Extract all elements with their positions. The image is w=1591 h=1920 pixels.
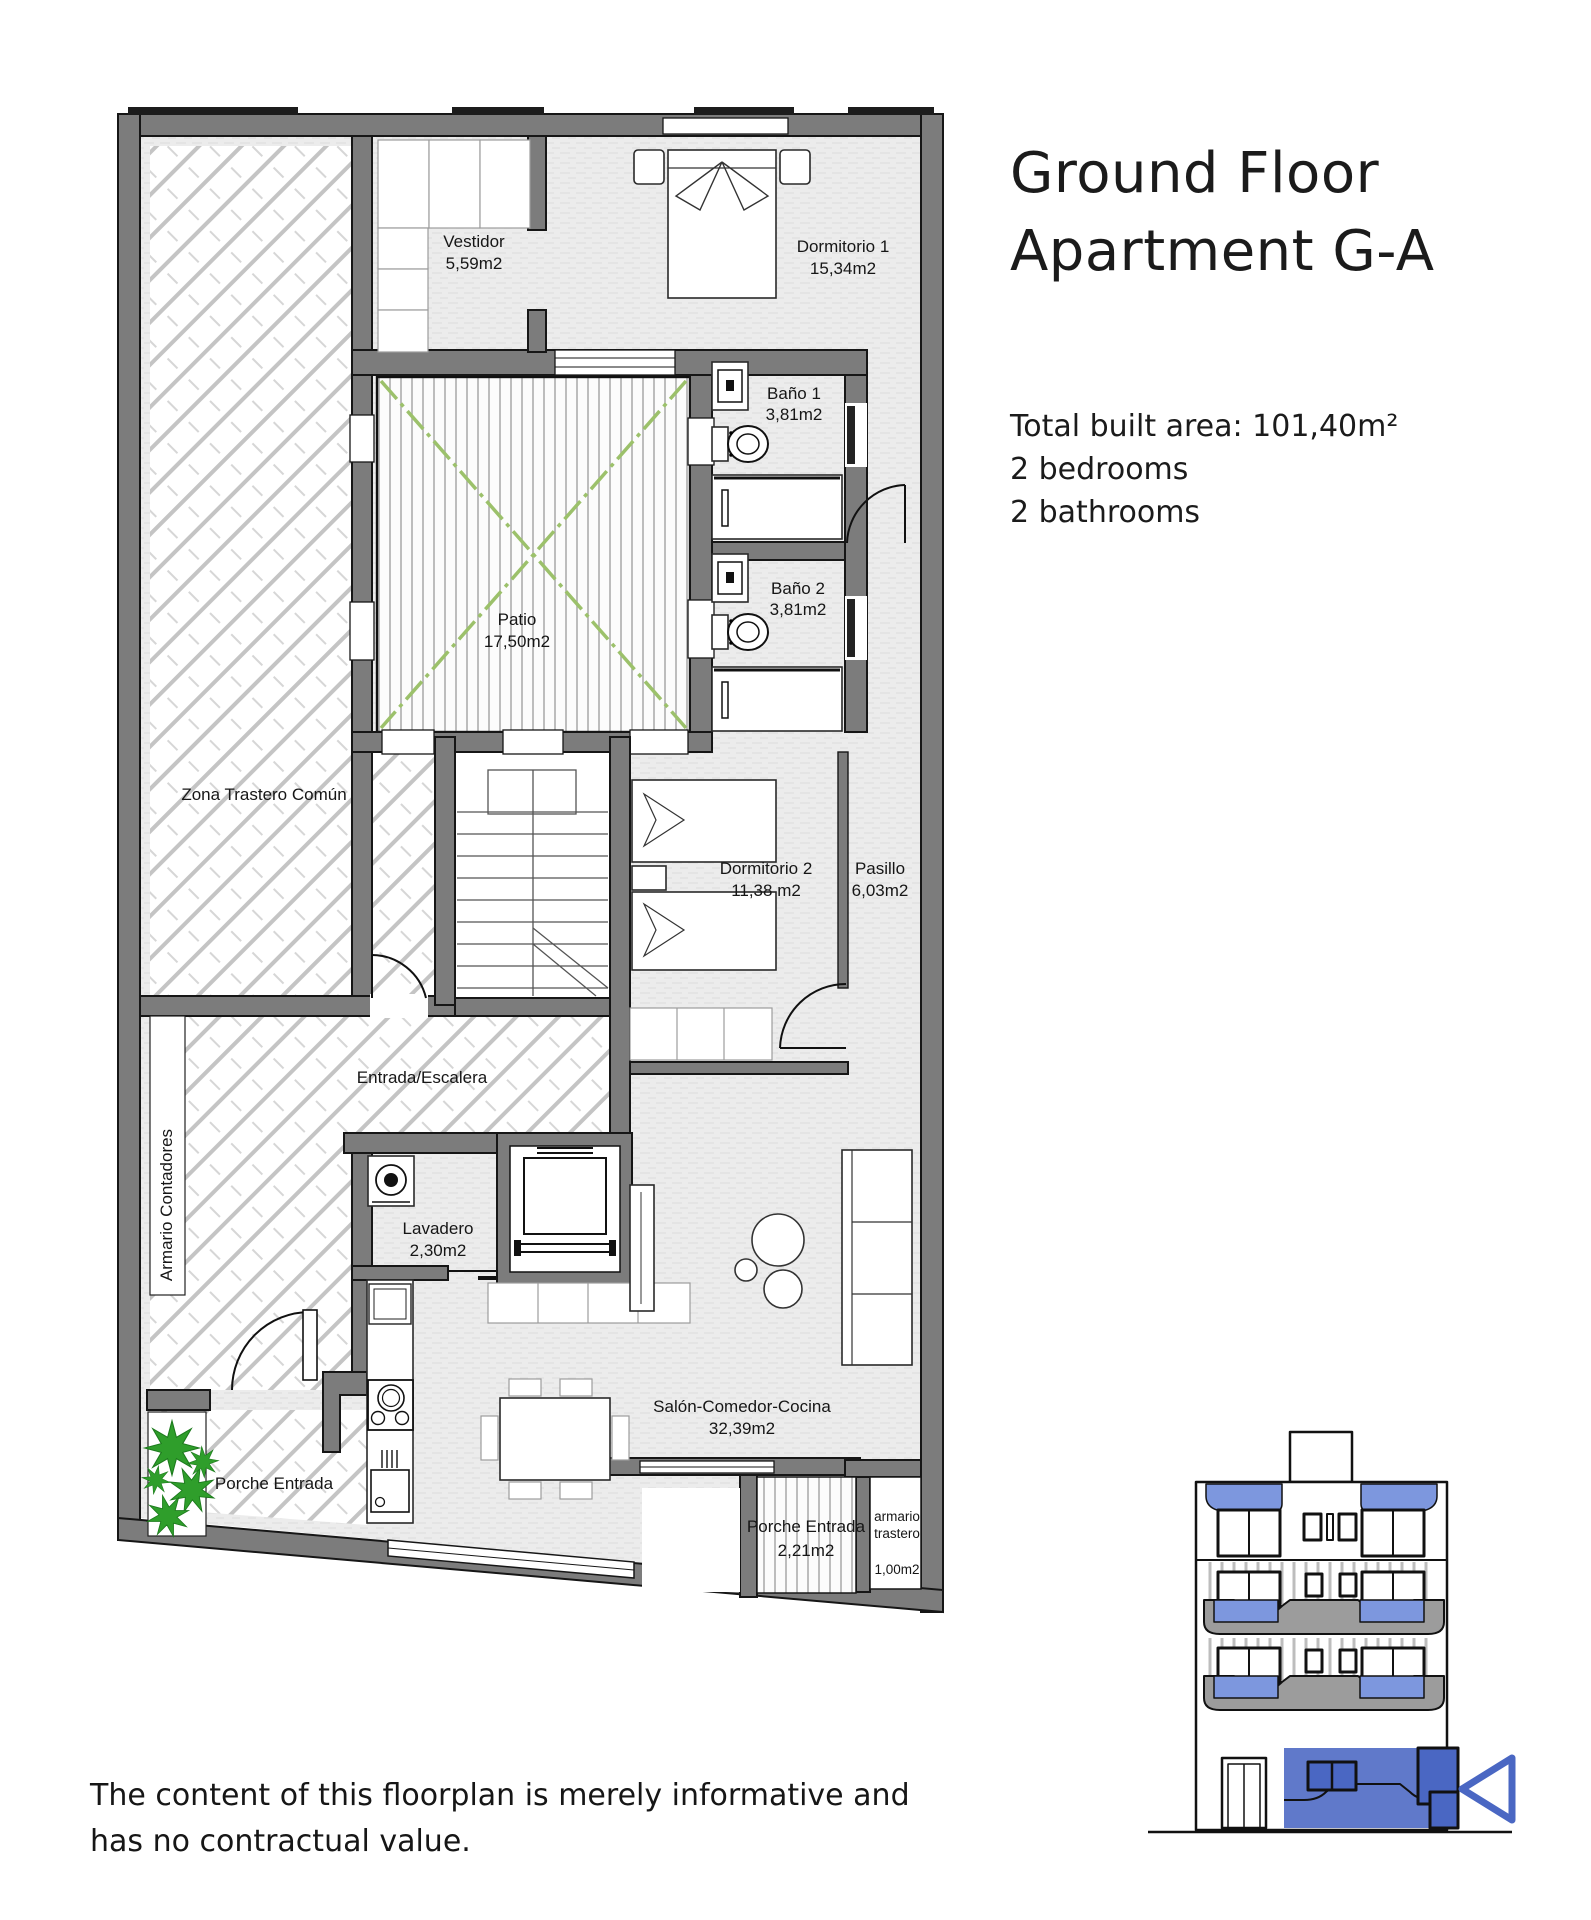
dining-table <box>500 1398 610 1480</box>
ground-floor <box>1222 1748 1458 1828</box>
nightstand <box>780 150 810 184</box>
elevator <box>497 1133 632 1285</box>
bedrooms-text: 2 bedrooms <box>1010 452 1188 487</box>
patio-top-window <box>555 350 675 375</box>
shower-icon <box>712 667 842 731</box>
sink-icon <box>712 554 748 602</box>
double-bed <box>668 150 776 298</box>
label-lavadero: Lavadero <box>403 1219 474 1238</box>
hob-icon <box>368 1380 413 1430</box>
label-bano2-area: 3,81m2 <box>770 600 827 619</box>
label-porche-se: Porche Entrada <box>747 1517 866 1536</box>
sofa <box>842 1150 912 1365</box>
label-bano1: Baño 1 <box>767 384 821 403</box>
floor-plan: Vestidor 5,59m2 Dormitorio 1 15,34m2 Bañ… <box>118 107 943 1612</box>
tv-sideboard <box>630 1185 654 1311</box>
label-vestidor-area: 5,59m2 <box>446 254 503 273</box>
label-dormitorio1: Dormitorio 1 <box>797 237 890 256</box>
shower-icon <box>712 475 842 539</box>
disclaimer-line2: has no contractual value. <box>90 1824 471 1859</box>
label-lavadero-area: 2,30m2 <box>410 1241 467 1260</box>
floorplan-page: Vestidor 5,59m2 Dormitorio 1 15,34m2 Bañ… <box>0 0 1591 1920</box>
page-title-line2: Apartment G-A <box>1010 219 1435 284</box>
staircase <box>455 752 610 998</box>
label-bano2: Baño 2 <box>771 579 825 598</box>
label-pasillo-area: 6,03m2 <box>852 881 909 900</box>
label-armario-trastero-2: trastero <box>874 1526 920 1541</box>
nightstand <box>632 866 666 890</box>
disclaimer-line1: The content of this floorplan is merely … <box>89 1778 910 1813</box>
washing-machine-icon <box>368 1156 414 1206</box>
label-pasillo: Pasillo <box>855 859 905 878</box>
dormitorio2-furniture <box>630 780 776 1060</box>
total-area-text: Total built area: 101,40m² <box>1009 409 1398 444</box>
kitchen-counter <box>488 1283 690 1323</box>
porch-se-window <box>640 1461 774 1473</box>
header: Ground Floor Apartment G-A Total built a… <box>1009 141 1435 530</box>
label-dormitorio2: Dormitorio 2 <box>720 859 813 878</box>
label-patio: Patio <box>498 610 537 629</box>
label-porche-se-area: 2,21m2 <box>778 1541 835 1560</box>
label-entrada-escalera: Entrada/Escalera <box>357 1068 488 1087</box>
page-title-line1: Ground Floor <box>1010 141 1380 206</box>
toilet-icon <box>712 426 768 462</box>
label-salon-area: 32,39m2 <box>709 1419 775 1438</box>
label-patio-area: 17,50m2 <box>484 632 550 651</box>
nightstand <box>634 150 664 184</box>
label-porche-sw: Porche Entrada <box>215 1474 334 1493</box>
label-dormitorio1-area: 15,34m2 <box>810 259 876 278</box>
single-bed <box>632 780 776 862</box>
label-zona-trastero: Zona Trastero Común <box>181 785 346 804</box>
label-armario-trastero-1: armario <box>874 1509 920 1524</box>
label-bano1-area: 3,81m2 <box>766 405 823 424</box>
wardrobe <box>630 1008 772 1060</box>
bathrooms-text: 2 bathrooms <box>1010 495 1200 530</box>
toilet-icon <box>712 614 768 650</box>
disclaimer: The content of this floorplan is merely … <box>89 1778 910 1859</box>
label-armario-contadores: Armario Contadores <box>157 1129 176 1281</box>
building-elevation <box>1148 1432 1512 1832</box>
sink-icon <box>712 362 748 410</box>
label-armario-trastero-area: 1,00m2 <box>874 1562 919 1577</box>
room-patio <box>377 377 690 732</box>
label-salon: Salón-Comedor-Cocina <box>653 1397 831 1416</box>
label-vestidor: Vestidor <box>443 232 505 251</box>
roof-tower <box>1290 1432 1352 1482</box>
single-bed <box>632 892 776 970</box>
camera-icon <box>1462 1758 1512 1820</box>
floorplan-svg: Vestidor 5,59m2 Dormitorio 1 15,34m2 Bañ… <box>0 0 1591 1920</box>
label-dormitorio2-area: 11,38 m2 <box>731 881 801 900</box>
